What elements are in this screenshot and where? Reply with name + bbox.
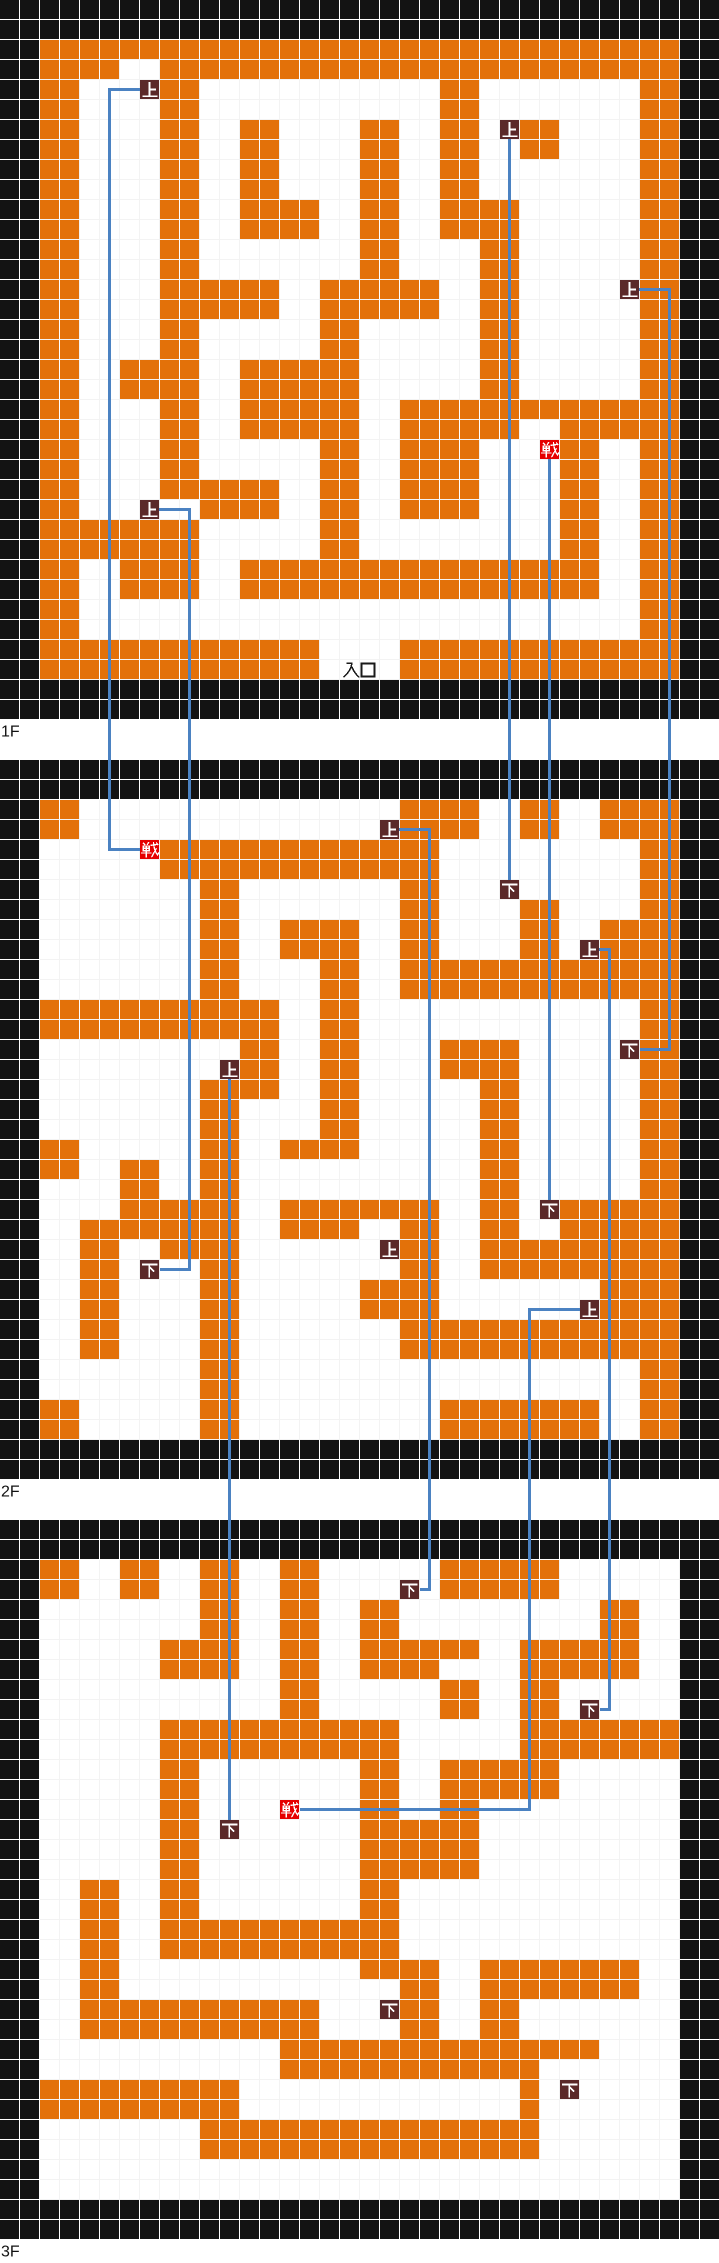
svg-text:1F: 1F xyxy=(1,724,20,741)
svg-text:3F: 3F xyxy=(1,2244,20,2259)
svg-text:2F: 2F xyxy=(1,1484,20,1501)
